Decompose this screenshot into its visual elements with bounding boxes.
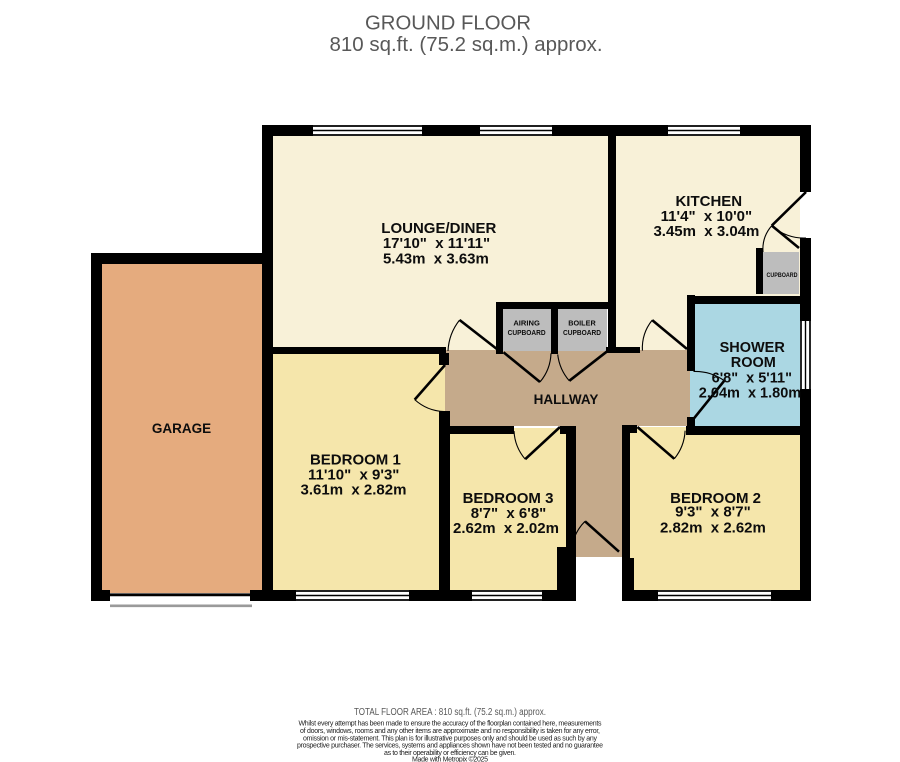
svg-text:Made with Metropix ©2025: Made with Metropix ©2025 xyxy=(412,755,488,762)
svg-text:TOTAL FLOOR AREA : 810 sq.ft.: TOTAL FLOOR AREA : 810 sq.ft. (75.2 sq.m… xyxy=(354,707,546,718)
svg-text:GROUND FLOOR: GROUND FLOOR xyxy=(365,13,531,35)
svg-text:ROOM: ROOM xyxy=(731,355,776,371)
svg-text:5.43m x 3.63m: 5.43m x 3.63m xyxy=(383,250,489,267)
svg-text:HALLWAY: HALLWAY xyxy=(534,392,599,407)
svg-text:6'8" x 5'11": 6'8" x 5'11" xyxy=(712,371,792,387)
svg-text:Whilst every attempt has been: Whilst every attempt has been made to en… xyxy=(299,721,603,728)
svg-text:3.45m x 3.04m: 3.45m x 3.04m xyxy=(653,223,759,240)
svg-text:3.61m x 2.82m: 3.61m x 2.82m xyxy=(301,481,407,498)
svg-text:CUPBOARD: CUPBOARD xyxy=(563,330,601,337)
svg-text:AIRING: AIRING xyxy=(513,321,540,328)
svg-text:BOILER: BOILER xyxy=(568,321,596,328)
svg-text:CUPBOARD: CUPBOARD xyxy=(508,330,546,337)
svg-text:2.62m x 2.02m: 2.62m x 2.02m xyxy=(453,520,559,537)
svg-text:2.04m x 1.80m: 2.04m x 1.80m xyxy=(699,385,801,401)
svg-text:810 sq.ft. (75.2 sq.m.) approx: 810 sq.ft. (75.2 sq.m.) approx. xyxy=(330,34,603,56)
svg-text:of doors, windows, rooms and a: of doors, windows, rooms and any other i… xyxy=(300,728,600,735)
svg-text:2.82m x 2.62m: 2.82m x 2.62m xyxy=(660,519,766,536)
svg-text:9'3" x 8'7": 9'3" x 8'7" xyxy=(675,504,751,521)
svg-text:SHOWER: SHOWER xyxy=(720,340,786,356)
svg-text:omission or mis-statement. Thi: omission or mis-statement. This plan is … xyxy=(303,735,598,742)
svg-text:prospective purchaser. The ser: prospective purchaser. The services, sys… xyxy=(297,743,603,750)
svg-text:GARAGE: GARAGE xyxy=(152,421,211,436)
svg-text:CUPBOARD: CUPBOARD xyxy=(767,272,798,279)
